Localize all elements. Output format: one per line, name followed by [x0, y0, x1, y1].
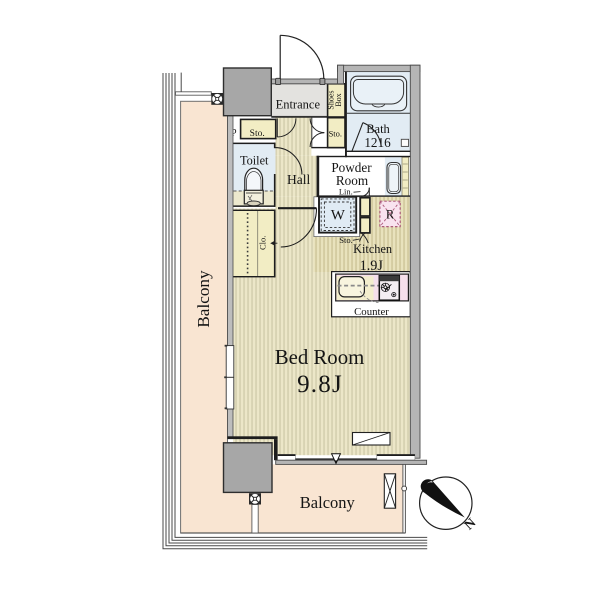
svg-text:Lin.: Lin.	[339, 187, 353, 197]
svg-text:Entrance: Entrance	[276, 97, 321, 111]
svg-text:Counter: Counter	[354, 306, 389, 318]
svg-text:W: W	[331, 208, 346, 224]
svg-text:Balcony: Balcony	[194, 270, 213, 328]
svg-text:1216: 1216	[364, 135, 391, 150]
svg-text:R: R	[386, 208, 395, 222]
svg-text:Hall: Hall	[287, 172, 310, 187]
svg-text:Kitchen: Kitchen	[353, 242, 392, 256]
svg-text:Clo.: Clo.	[258, 236, 268, 250]
svg-text:Toilet: Toilet	[240, 154, 269, 168]
svg-text:Box: Box	[334, 93, 343, 106]
svg-text:Sto.: Sto.	[339, 235, 353, 245]
svg-text:9.8J: 9.8J	[297, 371, 343, 398]
svg-text:Sto.: Sto.	[250, 129, 265, 139]
svg-text:Sto.: Sto.	[329, 129, 342, 139]
svg-text:Bed Room: Bed Room	[275, 346, 365, 369]
svg-text:Balcony: Balcony	[300, 493, 356, 512]
